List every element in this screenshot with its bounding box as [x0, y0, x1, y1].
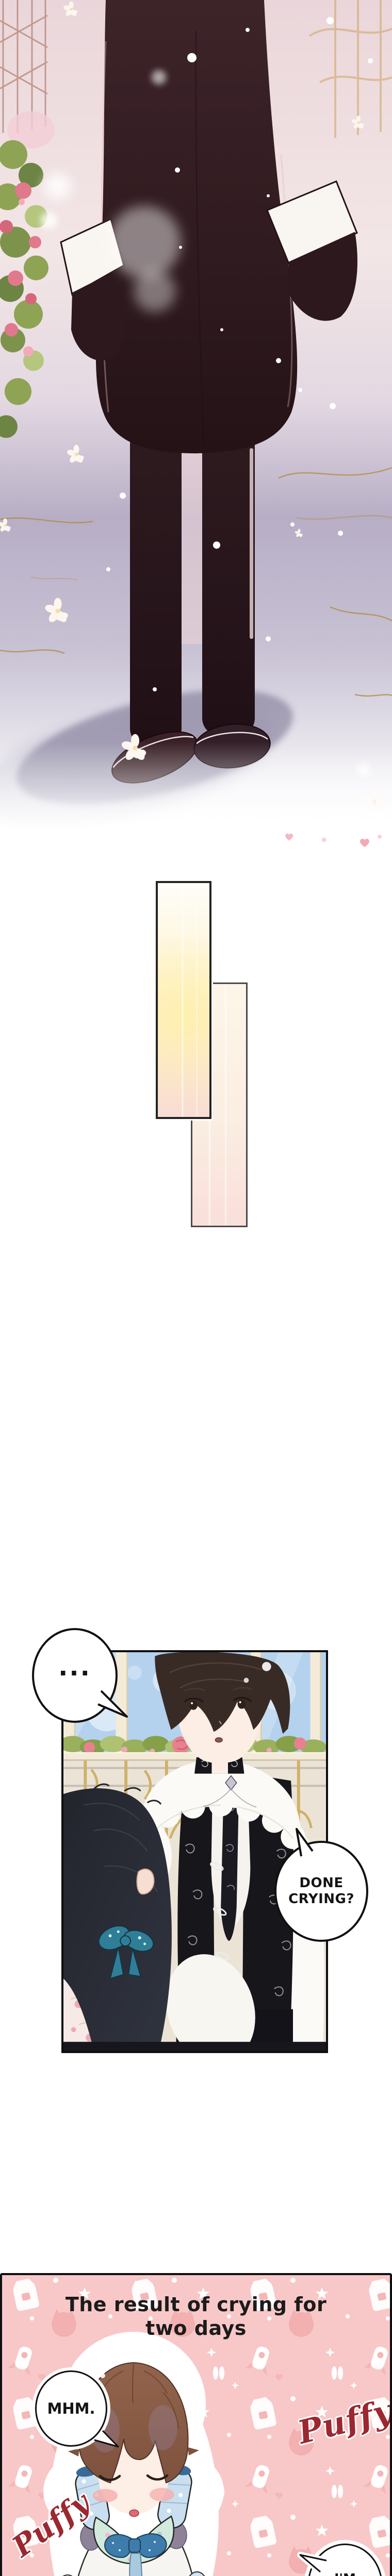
chibi-panel: The result of crying for two days: [0, 2273, 392, 2576]
transition-panel-a: [156, 881, 211, 1119]
speech-bubble-done-crying: DONE CRYING?: [274, 1841, 368, 1942]
heart-decorations: [279, 829, 387, 854]
chibi-mouth: [129, 2510, 139, 2517]
left-leg: [130, 427, 182, 746]
boy-mouth: [215, 1738, 222, 1742]
ellipsis-text: ...: [58, 1653, 91, 1682]
standing-scene-illustration: [0, 0, 392, 835]
right-leg: [202, 427, 255, 736]
pink-panel-title: The result of crying for two days: [2, 2293, 390, 2341]
blush-right: [150, 2488, 174, 2501]
im-done-text: I'M DONE.: [309, 2571, 381, 2576]
mhm-text: MHM.: [47, 2400, 95, 2417]
webtoon-page: ... DONE CRYING?: [0, 0, 392, 2576]
speech-bubble-ellipsis: ...: [32, 1628, 118, 1723]
done-crying-text: DONE CRYING?: [288, 1875, 354, 1907]
speech-bubble-mhm: MHM.: [35, 2370, 107, 2447]
